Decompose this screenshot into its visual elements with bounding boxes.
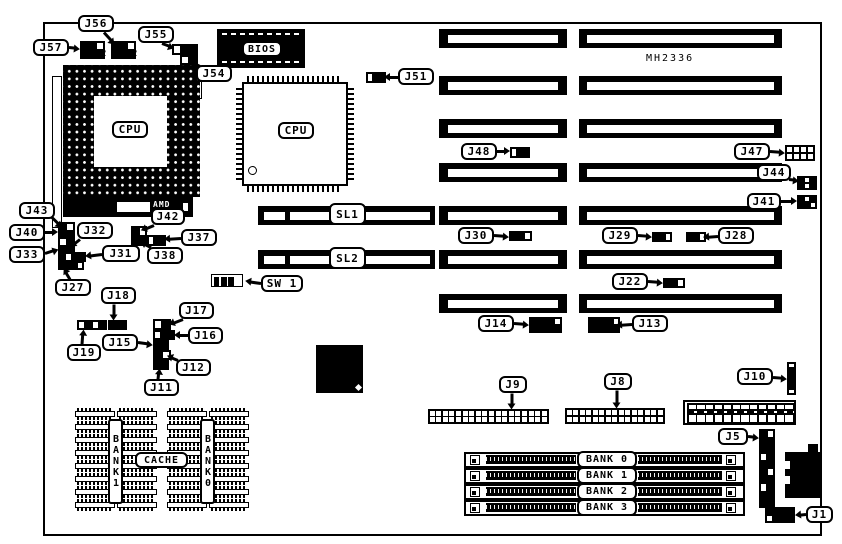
pin-cell bbox=[599, 410, 604, 416]
simm-contact-bar bbox=[638, 503, 722, 512]
pin-cell bbox=[522, 411, 527, 416]
pin-cell bbox=[542, 417, 547, 422]
callout-tail bbox=[45, 231, 53, 234]
cache-chip bbox=[209, 473, 249, 485]
cache-chip bbox=[117, 408, 157, 420]
pin-cell bbox=[542, 411, 547, 416]
pin-cell bbox=[750, 415, 757, 423]
pin-cell bbox=[463, 411, 468, 416]
pin-cell bbox=[761, 454, 767, 460]
isa-slot-opening bbox=[587, 35, 774, 43]
isa-slot-opening bbox=[587, 82, 774, 90]
pin-cell bbox=[502, 411, 507, 416]
pin-cell bbox=[808, 154, 814, 160]
pin-cell bbox=[805, 184, 810, 189]
isa-slot-opening bbox=[448, 169, 558, 177]
pin-cell bbox=[456, 411, 461, 416]
label-J10: J10 bbox=[737, 368, 773, 385]
simm-contact-bar bbox=[486, 487, 576, 496]
pin-cell bbox=[449, 411, 454, 416]
pin-cell bbox=[482, 417, 487, 422]
cache-chip bbox=[209, 486, 249, 498]
callout-tail bbox=[748, 435, 754, 439]
pin-cell bbox=[768, 405, 775, 410]
bios-dash bbox=[222, 61, 300, 63]
label-J41: J41 bbox=[747, 193, 781, 210]
jumper-J44 bbox=[797, 176, 817, 190]
label-J13: J13 bbox=[632, 315, 668, 332]
label-J28: J28 bbox=[718, 227, 754, 244]
pin-cell bbox=[79, 322, 85, 329]
pin-cell bbox=[638, 410, 643, 416]
pin-cell bbox=[645, 417, 650, 423]
pin-cell bbox=[794, 154, 800, 160]
label-J44: J44 bbox=[757, 164, 791, 181]
pin-cell bbox=[689, 405, 696, 410]
simm-latch bbox=[470, 455, 480, 465]
isa-slot-opening bbox=[587, 125, 774, 133]
jumper-J9-header bbox=[428, 409, 549, 424]
pin-cell bbox=[522, 417, 527, 422]
cache-chip bbox=[209, 408, 249, 420]
pin-cell bbox=[182, 57, 189, 64]
pin-cell bbox=[515, 411, 520, 416]
pin-cell bbox=[761, 484, 767, 490]
pin-cell bbox=[606, 410, 611, 416]
label-J38: J38 bbox=[147, 247, 183, 264]
pin-cell bbox=[502, 417, 507, 422]
jumper-J14-block bbox=[529, 317, 562, 333]
simm-contact-bar bbox=[486, 455, 576, 464]
pin-cell bbox=[787, 154, 793, 160]
label-J12: J12 bbox=[176, 359, 211, 376]
label-cache-bank0: BANK0 bbox=[200, 419, 215, 504]
jumper-J22-block bbox=[663, 278, 685, 288]
jumper-SW1-switch bbox=[211, 274, 243, 287]
jumper-J51 bbox=[366, 72, 386, 83]
bios-dash bbox=[222, 33, 300, 35]
pin-cell bbox=[469, 417, 474, 422]
keyboard-connector-tab bbox=[808, 444, 818, 453]
pin-cell bbox=[619, 417, 624, 423]
label-cache-bank1: BANK1 bbox=[108, 419, 123, 504]
pin-cell bbox=[368, 74, 373, 82]
pin-cell bbox=[625, 417, 630, 423]
simm-latch bbox=[470, 503, 480, 513]
label-J1: J1 bbox=[806, 506, 833, 523]
vlb-slot-opening bbox=[264, 212, 285, 220]
pin-cell bbox=[449, 417, 454, 422]
label-J27: J27 bbox=[55, 279, 91, 296]
pin-cell bbox=[625, 410, 630, 416]
simm-latch bbox=[726, 471, 736, 481]
pin-cell bbox=[529, 411, 534, 416]
simm-contact-bar bbox=[638, 471, 722, 480]
amd-window bbox=[117, 202, 150, 212]
jumper-J16-block bbox=[153, 330, 175, 340]
vlb-slot-opening bbox=[264, 256, 285, 264]
pin-cell bbox=[436, 417, 441, 422]
pin-cell bbox=[612, 410, 617, 416]
small-component bbox=[196, 81, 202, 99]
jumper-J29-block bbox=[652, 232, 672, 242]
cache-chip-body bbox=[167, 411, 207, 417]
pin-cell bbox=[759, 415, 766, 423]
pin-cell bbox=[174, 46, 181, 54]
pin-cell bbox=[67, 224, 73, 230]
callout-tail bbox=[497, 150, 505, 153]
simm-latch bbox=[470, 471, 480, 481]
pin-cell bbox=[706, 415, 713, 423]
pin-cell bbox=[586, 410, 591, 416]
pin-cell bbox=[805, 197, 810, 202]
cache-chip-body bbox=[209, 489, 249, 495]
cache-chip-body bbox=[209, 476, 249, 482]
label-J19: J19 bbox=[67, 344, 101, 361]
qfp-pins-bottom bbox=[247, 186, 342, 192]
pin-cell bbox=[777, 405, 784, 410]
pin-cell bbox=[463, 417, 468, 422]
isa-slot-opening bbox=[448, 35, 558, 43]
label-cpu-qfp: CPU bbox=[278, 122, 314, 139]
pin-cell bbox=[573, 410, 578, 416]
cache-chip-body bbox=[75, 411, 115, 417]
pin-cell bbox=[697, 405, 704, 410]
label-J51: J51 bbox=[398, 68, 434, 85]
pin-cell bbox=[805, 178, 810, 183]
callout-tail bbox=[169, 237, 181, 241]
pin-cell bbox=[768, 469, 774, 475]
jumper-J18-block bbox=[108, 320, 127, 330]
pin-cell bbox=[612, 417, 617, 423]
pin-cell bbox=[430, 411, 435, 416]
board-model-text: MH2336 bbox=[646, 53, 694, 64]
pin-cell bbox=[599, 417, 604, 423]
pin-cell bbox=[567, 417, 572, 423]
pin-cell bbox=[715, 415, 722, 423]
keyboard-notch bbox=[785, 461, 790, 469]
pin-cell bbox=[768, 415, 775, 423]
pin-cell bbox=[593, 410, 598, 416]
cache-chip-body bbox=[209, 502, 249, 508]
cache-chip-body bbox=[117, 502, 157, 508]
label-SW1: SW 1 bbox=[261, 275, 303, 292]
pin-cell bbox=[632, 410, 637, 416]
pin-cell bbox=[678, 280, 683, 287]
pin-cell bbox=[78, 263, 83, 269]
label-J48: J48 bbox=[461, 143, 497, 160]
pin-cell bbox=[496, 411, 501, 416]
keyboard-connector bbox=[785, 452, 820, 498]
isa-slot-opening bbox=[587, 300, 774, 308]
callout-tail bbox=[511, 393, 514, 404]
callout-tail bbox=[781, 200, 792, 203]
jumper-J47 bbox=[785, 145, 815, 161]
pin-cell bbox=[535, 411, 540, 416]
pin-cell bbox=[787, 147, 793, 153]
label-J22: J22 bbox=[612, 273, 648, 290]
cache-chip-body bbox=[209, 437, 249, 443]
isa-slot-opening bbox=[448, 212, 558, 220]
cache-chip bbox=[209, 421, 249, 433]
label-sl1: SL1 bbox=[329, 203, 366, 225]
pin-cell bbox=[632, 417, 637, 423]
jumper-J1-block bbox=[765, 507, 795, 523]
pin-cell bbox=[638, 417, 643, 423]
cache-chip-body bbox=[117, 437, 157, 443]
label-J30: J30 bbox=[458, 227, 494, 244]
pin-cell bbox=[228, 277, 234, 287]
callout-tail bbox=[514, 322, 524, 326]
pin-cell bbox=[706, 405, 713, 410]
pin-cell bbox=[567, 410, 572, 416]
cache-chip bbox=[209, 447, 249, 459]
pin-cell bbox=[789, 390, 795, 394]
cache-chip-body bbox=[117, 489, 157, 495]
simm-latch bbox=[726, 487, 736, 497]
pin-cell bbox=[221, 277, 227, 287]
pin-cell bbox=[93, 322, 99, 329]
pin-cell bbox=[525, 233, 531, 240]
jumper-J5-block bbox=[759, 429, 775, 508]
label-J42: J42 bbox=[151, 208, 185, 225]
simm-contact-bar bbox=[638, 487, 722, 496]
pin-cell bbox=[658, 410, 663, 416]
pin-cell bbox=[651, 410, 656, 416]
cache-chip-body bbox=[117, 424, 157, 430]
pin-cell bbox=[697, 415, 704, 423]
pin-cell bbox=[60, 239, 66, 245]
label-J54: J54 bbox=[196, 65, 232, 82]
pin-cell bbox=[476, 417, 481, 422]
isa-slot-opening bbox=[587, 169, 774, 177]
jumper-J15-block bbox=[153, 340, 169, 350]
label-J37: J37 bbox=[181, 229, 217, 246]
callout-tail bbox=[770, 150, 780, 154]
pin-cell bbox=[651, 417, 656, 423]
label-bank2-simm: BANK 2 bbox=[577, 483, 637, 500]
label-J57: J57 bbox=[33, 39, 69, 56]
simm-latch bbox=[470, 487, 480, 497]
callout-tail bbox=[648, 280, 658, 284]
pin-cell bbox=[724, 405, 731, 410]
pin-cell bbox=[509, 411, 514, 416]
keyboard-notch bbox=[785, 476, 790, 484]
isa-slot-opening bbox=[587, 256, 774, 264]
jumper-power-pins bbox=[687, 413, 795, 424]
pin-cell bbox=[436, 411, 441, 416]
pin-cell bbox=[66, 254, 71, 261]
jumper-J8-header bbox=[565, 408, 665, 424]
jumper-J10-block bbox=[787, 362, 796, 395]
isa-slot-opening bbox=[448, 300, 558, 308]
pin-cell bbox=[489, 417, 494, 422]
label-bios: BIOS bbox=[242, 41, 282, 57]
label-J16: J16 bbox=[188, 327, 223, 344]
pin-cell bbox=[509, 417, 514, 422]
cache-chip-body bbox=[209, 411, 249, 417]
label-bank3-simm: BANK 3 bbox=[577, 499, 637, 516]
jumper-J55 bbox=[172, 44, 198, 55]
pin-cell bbox=[512, 149, 517, 157]
callout-tail bbox=[621, 323, 632, 327]
label-J43: J43 bbox=[19, 202, 55, 219]
pin-cell bbox=[811, 203, 816, 208]
pin-cell bbox=[741, 415, 748, 423]
pin-cell bbox=[496, 417, 501, 422]
callout-tail bbox=[389, 76, 398, 79]
pin-cell bbox=[645, 410, 650, 416]
cache-chip bbox=[117, 421, 157, 433]
simm-contact-bar bbox=[486, 471, 576, 480]
label-J33: J33 bbox=[9, 246, 45, 263]
pin-cell bbox=[580, 417, 585, 423]
pin-cell bbox=[777, 415, 784, 423]
pin-cell bbox=[785, 415, 792, 423]
callout-tail bbox=[773, 376, 782, 380]
pin-cell bbox=[535, 417, 540, 422]
simm-latch bbox=[726, 455, 736, 465]
jumper-J48 bbox=[510, 147, 530, 158]
callout-tail bbox=[69, 46, 75, 50]
label-J8: J8 bbox=[604, 373, 632, 390]
label-J18: J18 bbox=[101, 287, 136, 304]
pin-cell bbox=[658, 417, 663, 423]
pin-cell bbox=[214, 277, 220, 287]
pin-cell bbox=[149, 237, 153, 245]
label-J56: J56 bbox=[78, 15, 114, 32]
cache-chip bbox=[117, 499, 157, 511]
label-J14: J14 bbox=[478, 315, 514, 332]
cache-chip-body bbox=[117, 476, 157, 482]
callout-tail bbox=[638, 234, 647, 238]
pin-cell bbox=[456, 417, 461, 422]
motherboard-diagram: J57J56J55J54J51J48J47J44J41J43J40J33J32J… bbox=[0, 0, 842, 544]
cache-chip bbox=[209, 460, 249, 472]
label-J32: J32 bbox=[77, 222, 113, 239]
label-cpu-pga: CPU bbox=[112, 121, 148, 138]
jumper-J57 bbox=[80, 41, 105, 59]
cache-chip-body bbox=[117, 411, 157, 417]
label-cache: CACHE bbox=[135, 452, 188, 468]
label-J15: J15 bbox=[102, 334, 138, 351]
pin-cell bbox=[128, 43, 134, 50]
pin-cell bbox=[443, 417, 448, 422]
label-J5: J5 bbox=[718, 428, 748, 445]
callout-tail bbox=[708, 235, 718, 239]
simm-contact-bar bbox=[486, 503, 576, 512]
cache-chip bbox=[209, 434, 249, 446]
label-J31: J31 bbox=[102, 245, 140, 262]
label-J47: J47 bbox=[734, 143, 770, 160]
label-J29: J29 bbox=[602, 227, 638, 244]
power-dash bbox=[687, 410, 793, 413]
cache-chip-body bbox=[209, 424, 249, 430]
pin-cell bbox=[733, 415, 740, 423]
pin-cell bbox=[529, 417, 534, 422]
pin-cell bbox=[515, 417, 520, 422]
isa-slot-opening bbox=[448, 125, 558, 133]
cache-chip-body bbox=[209, 450, 249, 456]
pin-cell bbox=[489, 411, 494, 416]
pin-cell bbox=[715, 405, 722, 410]
pin-cell bbox=[741, 405, 748, 410]
label-J9: J9 bbox=[499, 376, 527, 393]
cache-chip bbox=[117, 486, 157, 498]
callout-tail bbox=[81, 334, 85, 344]
pin-cell bbox=[794, 147, 800, 153]
qfp-pins-right bbox=[348, 87, 354, 180]
label-J17: J17 bbox=[179, 302, 214, 319]
pin-cell bbox=[580, 410, 585, 416]
label-bank0-simm: BANK 0 bbox=[577, 451, 637, 468]
pin-cell bbox=[476, 411, 481, 416]
label-bank1-simm: BANK 1 bbox=[577, 467, 637, 484]
label-J11: J11 bbox=[144, 379, 179, 396]
pin-cell bbox=[767, 516, 773, 522]
pin-cell bbox=[789, 364, 795, 368]
jumper-J41 bbox=[797, 195, 817, 209]
pin-cell bbox=[482, 411, 487, 416]
callout-tail bbox=[494, 234, 504, 238]
pin-cell bbox=[689, 415, 696, 423]
qfp-pin1-circle bbox=[248, 166, 257, 175]
label-J40: J40 bbox=[9, 224, 45, 241]
pin-cell bbox=[750, 405, 757, 410]
jumper-J30-block bbox=[509, 231, 532, 241]
pin-cell bbox=[619, 410, 624, 416]
pin-cell bbox=[443, 411, 448, 416]
pin-cell bbox=[155, 332, 160, 339]
pin-cell bbox=[808, 147, 814, 153]
pin-cell bbox=[666, 234, 671, 241]
pin-cell bbox=[801, 147, 807, 153]
cache-chip bbox=[209, 499, 249, 511]
simm-contact-bar bbox=[638, 455, 722, 464]
isa-slot-opening bbox=[448, 256, 558, 264]
callout-tail bbox=[113, 304, 116, 315]
label-J55: J55 bbox=[138, 26, 174, 43]
cache-chip bbox=[117, 434, 157, 446]
pin-cell bbox=[724, 415, 731, 423]
pin-cell bbox=[768, 431, 774, 437]
isa-slot-opening bbox=[448, 82, 558, 90]
pin-cell bbox=[97, 43, 103, 50]
callout-tail bbox=[138, 341, 148, 345]
simm-latch bbox=[726, 503, 736, 513]
pin-cell bbox=[155, 321, 162, 329]
pin-cell bbox=[586, 417, 591, 423]
pin-cell bbox=[573, 417, 578, 423]
pin-cell bbox=[785, 405, 792, 410]
pin-cell bbox=[733, 405, 740, 410]
pin-cell bbox=[430, 417, 435, 422]
cache-chip-body bbox=[209, 463, 249, 469]
pin-cell bbox=[469, 411, 474, 416]
label-sl2: SL2 bbox=[329, 247, 366, 269]
isa-slot-opening bbox=[587, 212, 774, 220]
pin-cell bbox=[593, 417, 598, 423]
pin-cell bbox=[759, 405, 766, 410]
pin-cell bbox=[801, 154, 807, 160]
callout-tail bbox=[179, 334, 188, 337]
cache-chip bbox=[117, 473, 157, 485]
pin-cell bbox=[555, 319, 560, 325]
callout-tail bbox=[616, 390, 619, 403]
pin-cell bbox=[606, 417, 611, 423]
